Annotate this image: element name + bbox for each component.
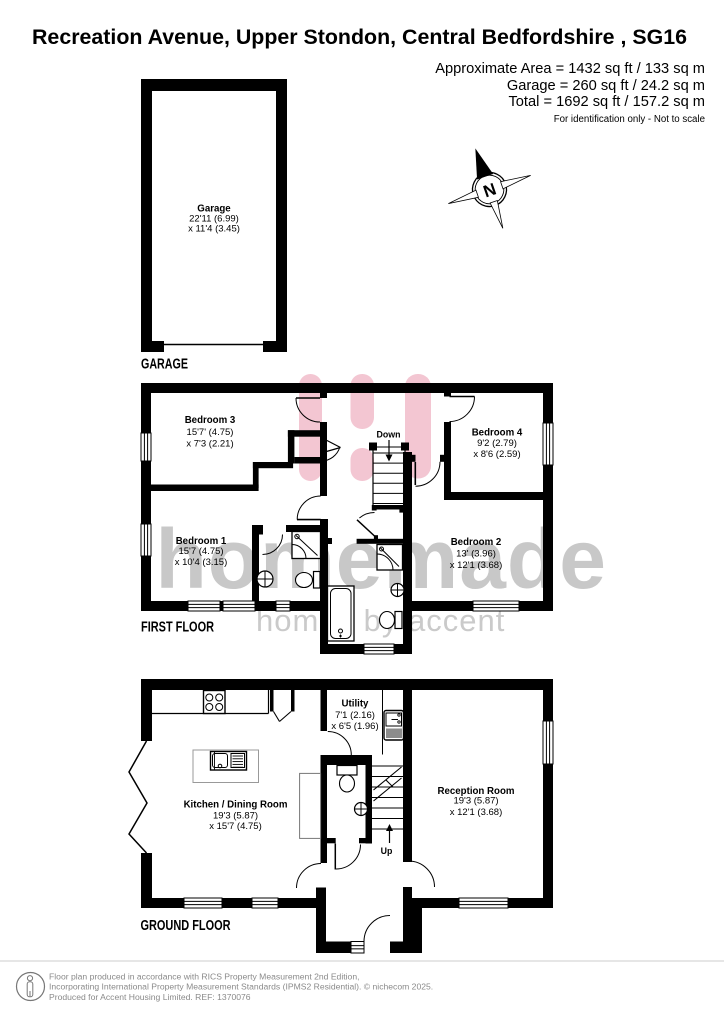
svg-text:x 7'3 (2.21): x 7'3 (2.21): [186, 438, 233, 449]
svg-text:19'3 (5.87): 19'3 (5.87): [453, 795, 498, 806]
svg-text:Incorporating International Pr: Incorporating International Property Mea…: [49, 982, 433, 992]
svg-text:Recreation Avenue, Upper Stond: Recreation Avenue, Upper Stondon, Centra…: [32, 25, 687, 49]
svg-text:x 12'1 (3.68): x 12'1 (3.68): [450, 807, 503, 818]
svg-text:x 11'4 (3.45): x 11'4 (3.45): [188, 224, 240, 235]
svg-text:Total = 1692 sq ft / 157.2 sq: Total = 1692 sq ft / 157.2 sq m: [508, 94, 705, 110]
svg-text:19'3 (5.87): 19'3 (5.87): [213, 810, 258, 821]
svg-text:x 10'4 (3.15): x 10'4 (3.15): [175, 557, 228, 568]
svg-text:15'7' (4.75): 15'7' (4.75): [187, 427, 234, 438]
svg-text:For identification only - Not: For identification only - Not to scale: [554, 114, 705, 125]
svg-text:7'1 (2.16): 7'1 (2.16): [335, 710, 375, 721]
svg-text:Up: Up: [381, 846, 393, 856]
svg-text:FIRST FLOOR: FIRST FLOOR: [141, 620, 215, 636]
svg-text:Bedroom 2: Bedroom 2: [451, 537, 502, 548]
svg-text:Approximate Area = 1432 sq ft: Approximate Area = 1432 sq ft / 133 sq m: [435, 61, 705, 77]
svg-text:15'7 (4.75): 15'7 (4.75): [178, 546, 223, 557]
svg-text:Bedroom 4: Bedroom 4: [472, 428, 523, 439]
svg-text:GARAGE: GARAGE: [141, 357, 188, 373]
svg-text:Garage = 260 sq ft / 24.2 sq m: Garage = 260 sq ft / 24.2 sq m: [507, 78, 705, 94]
svg-text:GROUND FLOOR: GROUND FLOOR: [141, 918, 232, 934]
svg-text:Kitchen / Dining Room: Kitchen / Dining Room: [184, 800, 288, 811]
svg-text:9'2 (2.79): 9'2 (2.79): [477, 438, 517, 449]
svg-text:x 12'1 (3.68): x 12'1 (3.68): [450, 560, 503, 571]
svg-text:x 15'7 (4.75): x 15'7 (4.75): [209, 821, 262, 832]
svg-text:x 8'6 (2.59): x 8'6 (2.59): [473, 449, 520, 460]
svg-text:Down: Down: [377, 430, 401, 440]
svg-text:x 6'5 (1.96): x 6'5 (1.96): [331, 721, 378, 732]
svg-text:Produced for Accent Housing Li: Produced for Accent Housing Limited. REF…: [49, 992, 251, 1002]
svg-text:Bedroom 3: Bedroom 3: [185, 415, 236, 426]
svg-text:Floor plan produced in accorda: Floor plan produced in accordance with R…: [49, 972, 360, 982]
svg-text:Utility: Utility: [342, 698, 370, 709]
svg-text:13' (3.96): 13' (3.96): [456, 549, 496, 560]
